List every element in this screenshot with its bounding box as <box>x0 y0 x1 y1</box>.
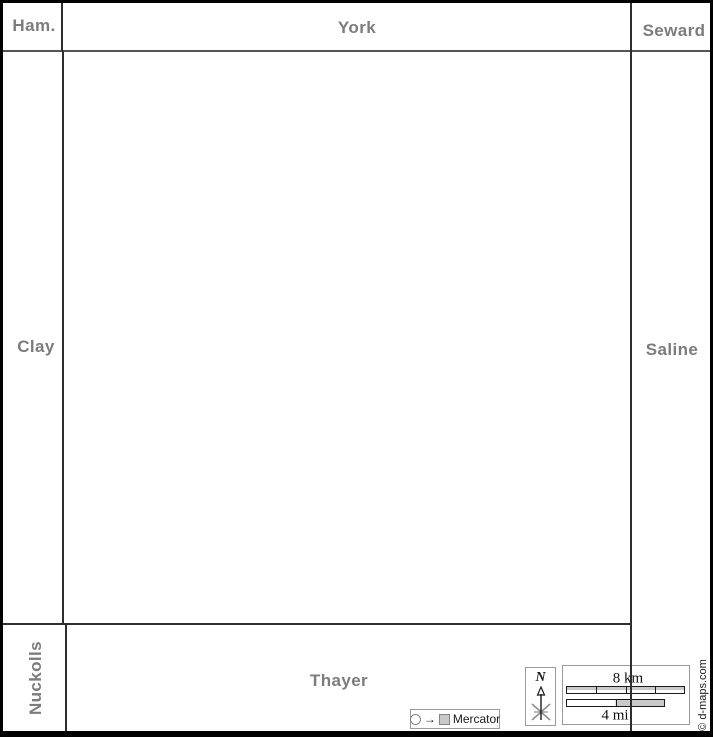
border-line-nuckolls-thayer <box>65 625 67 737</box>
scale-mi-label: 4 mi <box>601 708 628 725</box>
sphere-icon <box>410 714 421 725</box>
border-line-north <box>0 50 713 52</box>
county-label-saline: Saline <box>646 340 698 360</box>
county-label-seward: Seward <box>643 21 706 41</box>
scale-bar-mi <box>566 699 665 707</box>
border-line-hamilton-york <box>61 0 63 51</box>
compass-legend: N <box>525 667 556 726</box>
flat-map-icon <box>439 714 450 725</box>
projection-legend: → Mercator <box>410 709 500 729</box>
scale-legend: 8 km 4 mi <box>562 665 690 725</box>
scale-tick <box>626 686 627 694</box>
scale-tick <box>655 686 656 694</box>
county-label-york: York <box>338 18 376 38</box>
arrow-right-icon: → <box>424 713 436 725</box>
map-frame <box>0 0 713 737</box>
copyright-credit: © d-maps.com <box>697 659 709 731</box>
county-label-clay: Clay <box>17 337 55 357</box>
county-label-thayer: Thayer <box>310 671 368 691</box>
scale-tick <box>616 699 617 707</box>
border-line-west <box>62 51 64 625</box>
county-map-canvas: Ham. York Seward Clay Saline Nuckolls Th… <box>0 0 713 737</box>
county-label-nuckolls: Nuckolls <box>26 641 46 715</box>
county-label-hamilton: Ham. <box>12 16 55 36</box>
border-line-east <box>630 0 632 737</box>
projection-name: Mercator <box>453 713 500 725</box>
scale-bar-km <box>566 686 685 694</box>
north-label: N <box>526 671 555 685</box>
scale-km-label: 8 km <box>613 671 643 688</box>
compass-rose-icon <box>528 686 554 724</box>
scale-tick <box>596 686 597 694</box>
border-line-south <box>0 623 632 625</box>
